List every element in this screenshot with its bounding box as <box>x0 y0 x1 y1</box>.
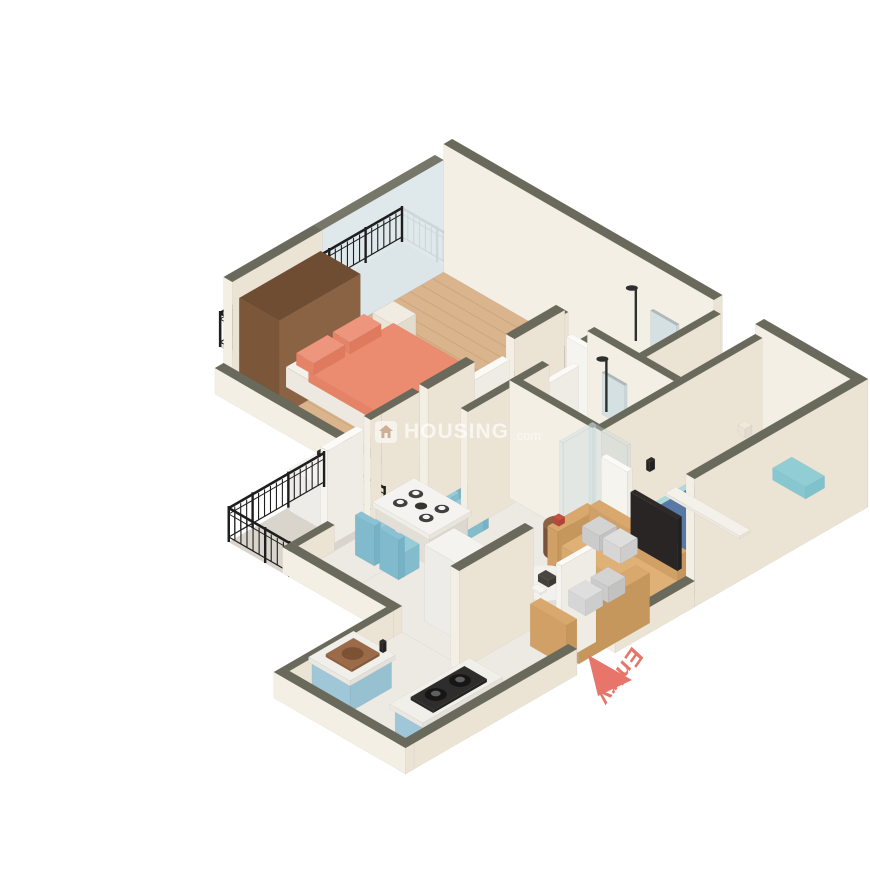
floorplan-svg <box>0 0 870 870</box>
plate-center <box>412 491 419 495</box>
stove-burner-ring <box>455 677 465 683</box>
serving-bowl <box>415 502 427 509</box>
plate-center <box>423 515 430 519</box>
floorplan-canvas: HOUSING .com Entry <box>0 0 870 870</box>
plate-center <box>397 500 404 504</box>
stove-burner-ring <box>431 691 441 697</box>
plate-center <box>438 506 445 510</box>
sink-bowl <box>342 647 364 660</box>
kitchen-tap <box>380 639 387 653</box>
tap-bathroom2 <box>646 457 655 472</box>
